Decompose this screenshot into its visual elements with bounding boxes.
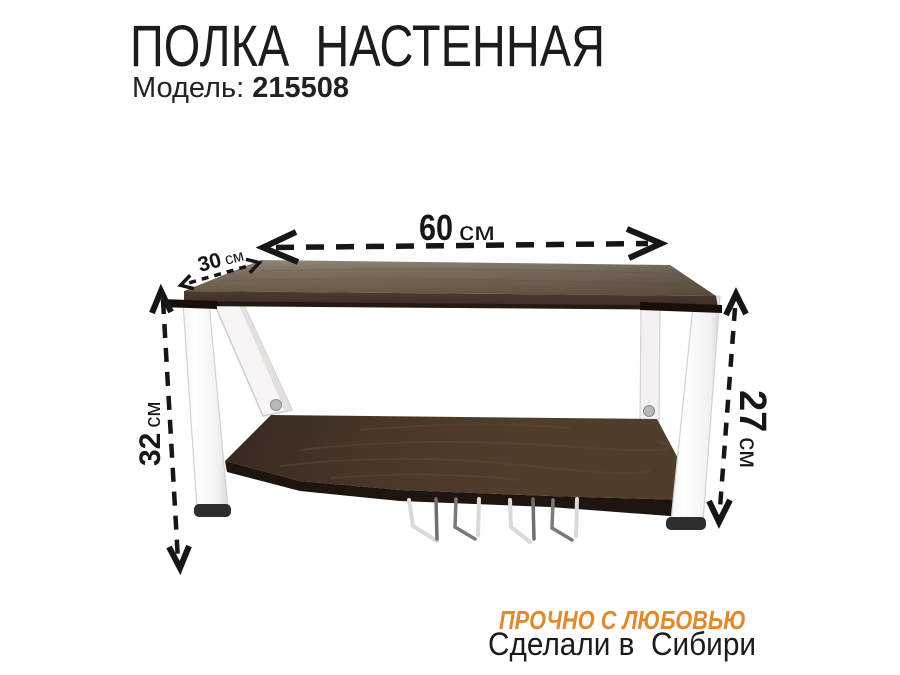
svg-text:ПОЛКА НАСТЕННАЯ: ПОЛКА НАСТЕННАЯ xyxy=(130,14,605,79)
svg-text:27см: 27см xyxy=(731,390,773,468)
svg-text:см: см xyxy=(459,216,495,246)
svg-text:Сделали в Сибири: Сделали в Сибири xyxy=(488,626,756,662)
svg-text:Модель: 215508: Модель: 215508 xyxy=(132,72,349,104)
svg-text:32см: 32см xyxy=(134,402,167,467)
svg-text:60: 60 xyxy=(419,207,453,248)
